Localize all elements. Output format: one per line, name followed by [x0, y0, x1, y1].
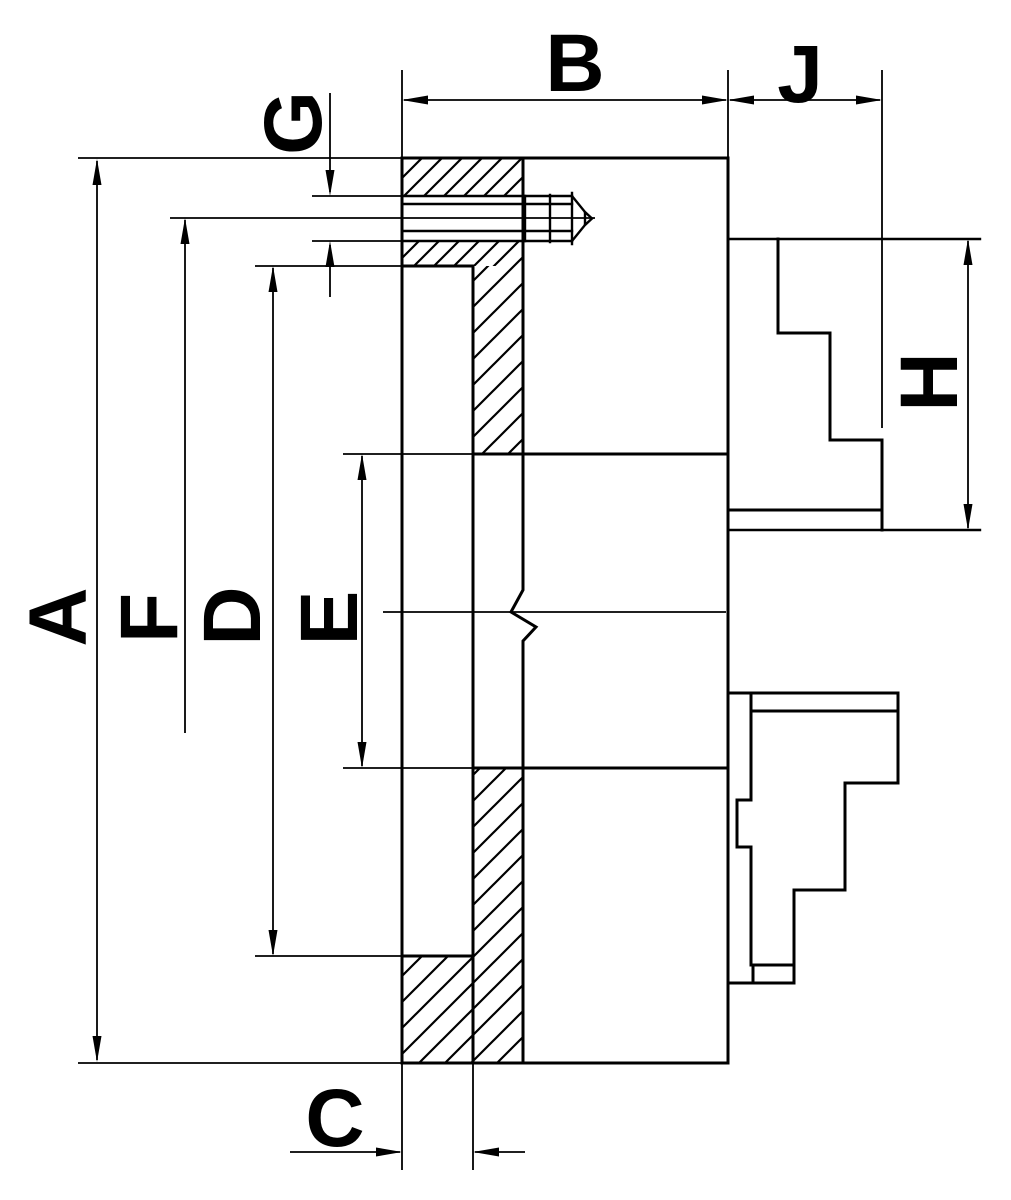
- dimension-j: J: [728, 29, 882, 120]
- dim-h-arrowhead-top: [964, 239, 973, 265]
- lower-jaw-profile: [728, 693, 898, 983]
- hatch-region-upper-web: [473, 266, 523, 454]
- dim-d-arrowhead-top: [269, 266, 278, 292]
- lower-jaw-slot: [737, 693, 751, 965]
- dimension-b: B: [402, 18, 728, 109]
- dim-a-arrowhead-bottom: [93, 1036, 102, 1062]
- upper-jaw-steps: [778, 239, 882, 530]
- dim-c-arrowhead-left: [376, 1148, 402, 1157]
- dim-j-label: J: [777, 29, 823, 120]
- dimension-d: D: [187, 266, 278, 956]
- dim-a-label: A: [13, 587, 104, 646]
- dimension-a: A: [13, 159, 104, 1062]
- chuck-dimension-drawing: A B J G F D E: [0, 0, 1011, 1200]
- dim-g-arrowhead-bottom: [326, 241, 335, 267]
- section-hatching: [402, 158, 523, 1063]
- dim-b-arrowhead-left: [402, 96, 428, 105]
- dim-h-arrowhead-bottom: [964, 504, 973, 530]
- rear-recess-edge: [402, 266, 473, 1063]
- dim-d-arrowhead-bottom: [269, 930, 278, 956]
- dim-h-label: H: [884, 352, 975, 411]
- lower-jaw-outline: [728, 693, 898, 983]
- technical-drawing-page: A B J G F D E: [0, 0, 1011, 1200]
- dim-c-arrowhead-right: [473, 1148, 499, 1157]
- dim-b-arrowhead-right: [702, 96, 728, 105]
- hatch-region-lower-web: [473, 768, 523, 956]
- center-axis-lines: [170, 218, 726, 612]
- hatch-region-top-flange: [402, 158, 523, 196]
- dim-g-arrowhead-top: [326, 170, 335, 196]
- dimension-h: H: [884, 239, 975, 530]
- dim-a-arrowhead-top: [93, 159, 102, 185]
- dim-e-arrowhead-top: [358, 454, 367, 480]
- ext-c-verticals: [402, 1063, 473, 1170]
- dim-e-label: E: [284, 591, 375, 646]
- dim-g-label: G: [248, 91, 339, 155]
- dim-c-label: C: [305, 1073, 364, 1164]
- hatch-region-below-bolt: [402, 241, 523, 266]
- dim-j-arrowhead-left: [728, 96, 754, 105]
- dim-e-arrowhead-bottom: [358, 742, 367, 768]
- dimension-e: E: [284, 454, 375, 768]
- dim-b-label: B: [545, 18, 604, 109]
- dimension-c: C: [290, 1073, 525, 1164]
- hatch-region-bottom-flange: [402, 956, 523, 1063]
- dim-j-arrowhead-right: [856, 96, 882, 105]
- lower-jaw-key-block: [753, 965, 794, 983]
- dim-f-label: F: [104, 593, 195, 643]
- dim-d-label: D: [187, 586, 278, 645]
- chuck-body-outline: [402, 158, 728, 1063]
- dimension-f: F: [104, 218, 195, 733]
- dim-f-arrowhead-top: [181, 218, 190, 244]
- body-section-rect: [402, 158, 728, 1063]
